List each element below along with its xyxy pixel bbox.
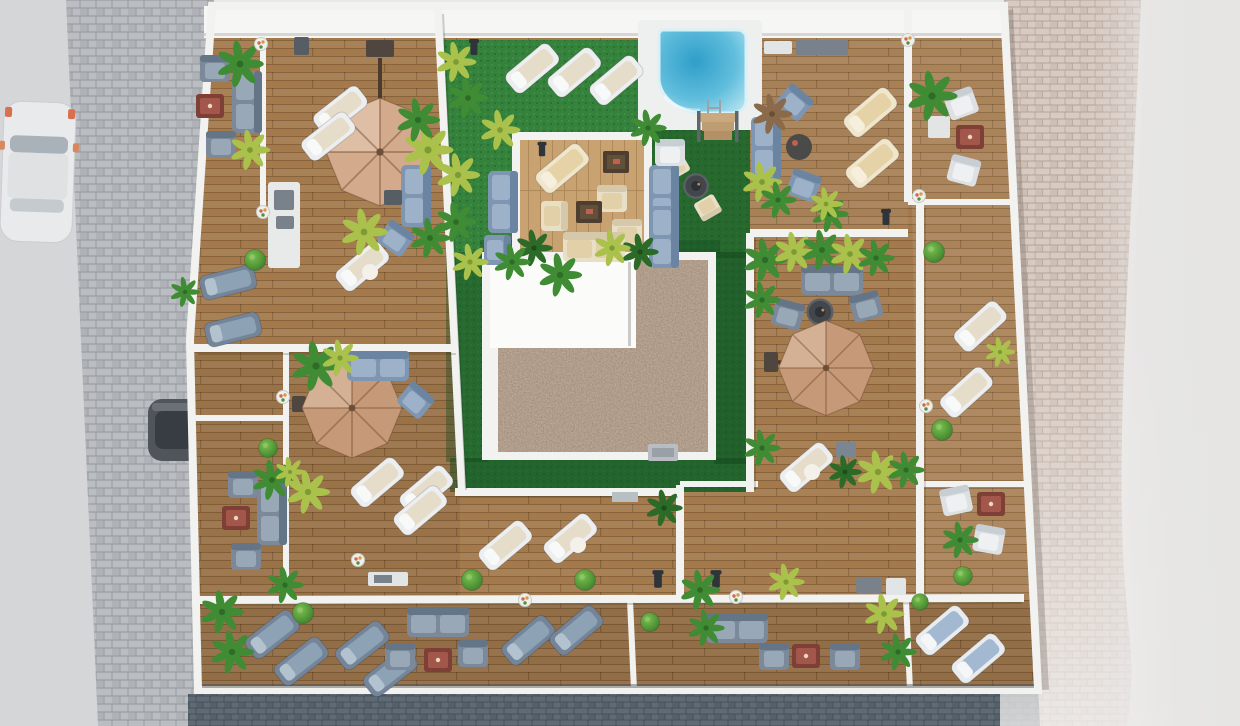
side-table xyxy=(384,190,402,205)
kitchen-grille xyxy=(374,575,392,583)
car-white-rear-window xyxy=(10,198,64,213)
topiary-ball xyxy=(259,439,278,458)
armchair xyxy=(655,139,685,166)
parapet-wall xyxy=(196,598,1024,600)
planter-box xyxy=(928,116,950,138)
lawn-gate xyxy=(612,492,638,502)
rooftop-aerial-render: Aerial 3D architectural render of a roof… xyxy=(0,0,1240,726)
armchair xyxy=(231,543,261,570)
flower-pot xyxy=(902,34,915,47)
topiary-ball xyxy=(245,250,266,271)
coffee-table xyxy=(792,644,820,668)
lounge-chair xyxy=(541,201,568,231)
flower-pot xyxy=(519,594,532,607)
outdoor-sofa xyxy=(649,206,679,268)
bollard-light xyxy=(881,209,891,225)
render-canvas xyxy=(0,0,1240,726)
flower-pot xyxy=(352,554,365,567)
car-white-roof xyxy=(7,152,69,200)
kitchen-grill xyxy=(274,190,294,210)
car-white-mirror xyxy=(73,143,79,152)
towel xyxy=(362,264,378,280)
flower-pot xyxy=(920,400,933,413)
car-white-taillight xyxy=(5,107,12,117)
outdoor-sofa xyxy=(488,171,518,233)
coffee-table xyxy=(956,125,984,149)
fire-table xyxy=(808,300,833,325)
bollard-light xyxy=(653,570,664,588)
car-white-windshield xyxy=(10,135,69,154)
ac-unit-grille xyxy=(652,448,674,457)
coffee-table xyxy=(424,648,452,672)
coffee-table xyxy=(196,94,224,118)
armchair xyxy=(385,643,415,670)
outdoor-kitchen-box xyxy=(764,41,792,54)
topiary-ball xyxy=(924,242,945,263)
topiary-ball xyxy=(932,420,953,441)
outdoor-kitchen-counter xyxy=(856,578,882,593)
coffee-table xyxy=(977,492,1005,516)
topiary-ball xyxy=(462,570,483,591)
coffee-table xyxy=(576,201,602,223)
north-parapet-shadow xyxy=(204,33,1006,36)
topiary-ball xyxy=(293,603,314,624)
fire-table xyxy=(684,174,707,197)
car-white xyxy=(0,101,80,244)
ottoman xyxy=(836,442,856,458)
outdoor-kitchen-box xyxy=(886,578,906,595)
coffee-table xyxy=(603,151,629,173)
kitchen-sink xyxy=(276,216,294,229)
topiary-ball xyxy=(575,570,596,591)
lawn-shadow xyxy=(714,252,750,464)
flower-pot xyxy=(257,206,270,219)
armchair xyxy=(759,643,789,670)
flower-pot xyxy=(255,38,268,51)
outdoor-kitchen-counter xyxy=(796,40,848,55)
parasol xyxy=(779,321,874,416)
armchair xyxy=(830,643,860,670)
swimming-pool xyxy=(659,30,746,113)
east-plain-fade xyxy=(1090,0,1240,726)
outdoor-sofa xyxy=(407,607,469,637)
outdoor-sofa xyxy=(801,265,863,295)
car-white-taillight xyxy=(68,109,75,119)
coffee-table xyxy=(222,506,250,530)
round-dining-table xyxy=(786,134,812,160)
central-roof-core xyxy=(482,252,716,461)
topiary-ball xyxy=(641,613,660,632)
armchair xyxy=(228,471,258,498)
flower-pot xyxy=(913,190,926,203)
topiary-ball xyxy=(912,594,929,611)
flower-pot xyxy=(277,391,290,404)
car-white-mirror xyxy=(0,141,5,150)
towel xyxy=(804,464,820,480)
core-roof-joint xyxy=(628,262,631,346)
towel xyxy=(570,537,586,553)
topiary-ball xyxy=(954,567,973,586)
roof-access-hatch xyxy=(294,37,309,55)
flower-pot xyxy=(730,591,743,604)
building-roof xyxy=(190,6,1038,690)
table-decor xyxy=(792,140,798,146)
outdoor-sofa xyxy=(347,351,409,381)
armchair xyxy=(458,640,488,667)
armchair xyxy=(206,131,236,158)
bollard-light xyxy=(469,39,479,55)
nw-kitchen-island xyxy=(268,182,300,268)
outdoor-sofa xyxy=(401,165,431,227)
parapet-wall xyxy=(630,600,634,690)
